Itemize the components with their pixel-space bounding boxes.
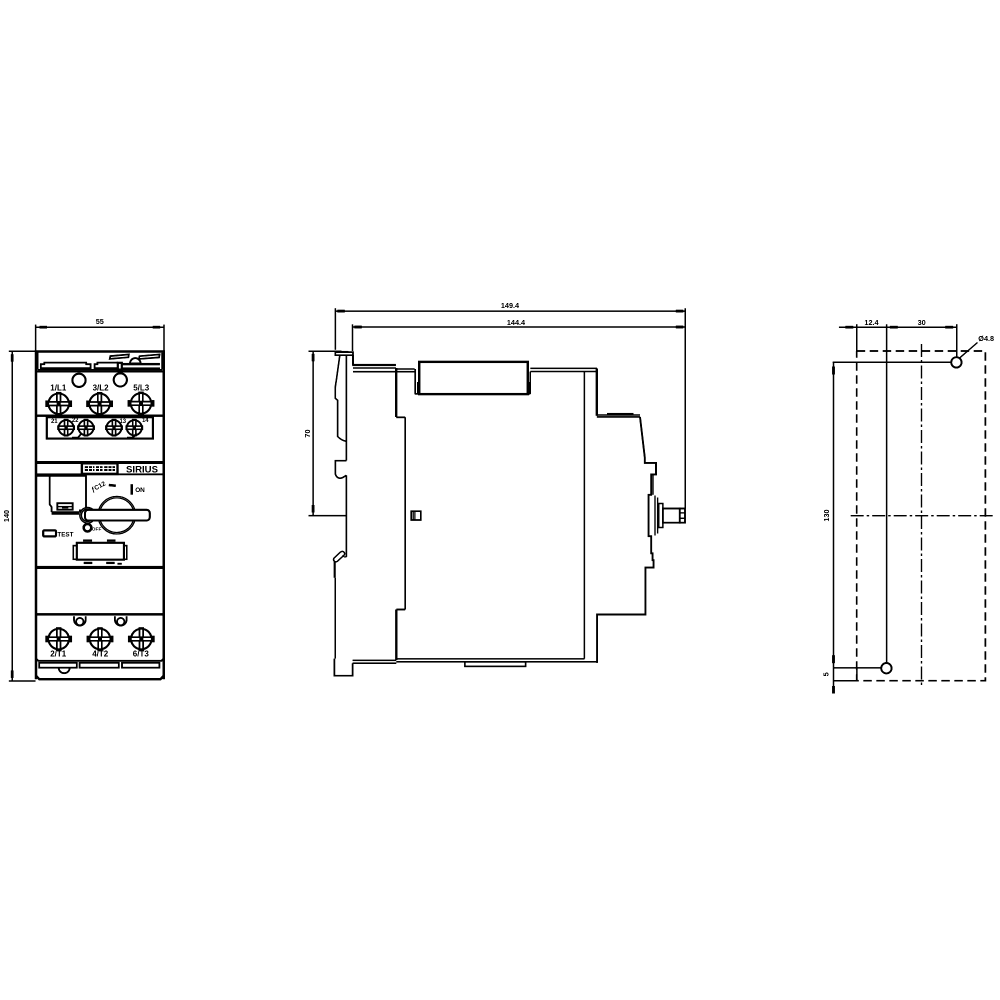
svg-text:5/L3: 5/L3 [133, 384, 150, 393]
svg-text:5: 5 [821, 672, 830, 676]
svg-text:14: 14 [142, 418, 149, 424]
svg-text:6/T3: 6/T3 [133, 649, 150, 658]
svg-text:4/T2: 4/T2 [92, 649, 109, 658]
svg-text:144.4: 144.4 [507, 318, 526, 327]
svg-text:21: 21 [51, 419, 58, 425]
svg-text:2/T1: 2/T1 [50, 649, 67, 658]
svg-text:1/L1: 1/L1 [50, 384, 67, 393]
svg-text:SIRIUS: SIRIUS [126, 465, 159, 476]
svg-text:ON: ON [135, 487, 145, 494]
svg-text:149.4: 149.4 [501, 301, 520, 310]
svg-text:3/L2: 3/L2 [93, 384, 110, 393]
svg-text:TEST: TEST [57, 532, 73, 539]
svg-text:12.4: 12.4 [864, 318, 879, 327]
svg-text:140: 140 [2, 510, 11, 522]
svg-text:130: 130 [822, 509, 831, 521]
svg-text:55: 55 [96, 317, 104, 326]
svg-text:30: 30 [918, 318, 926, 327]
svg-text:Ø4.8: Ø4.8 [978, 334, 994, 343]
svg-text:70: 70 [303, 429, 312, 437]
svg-text:OFF: OFF [92, 526, 102, 532]
